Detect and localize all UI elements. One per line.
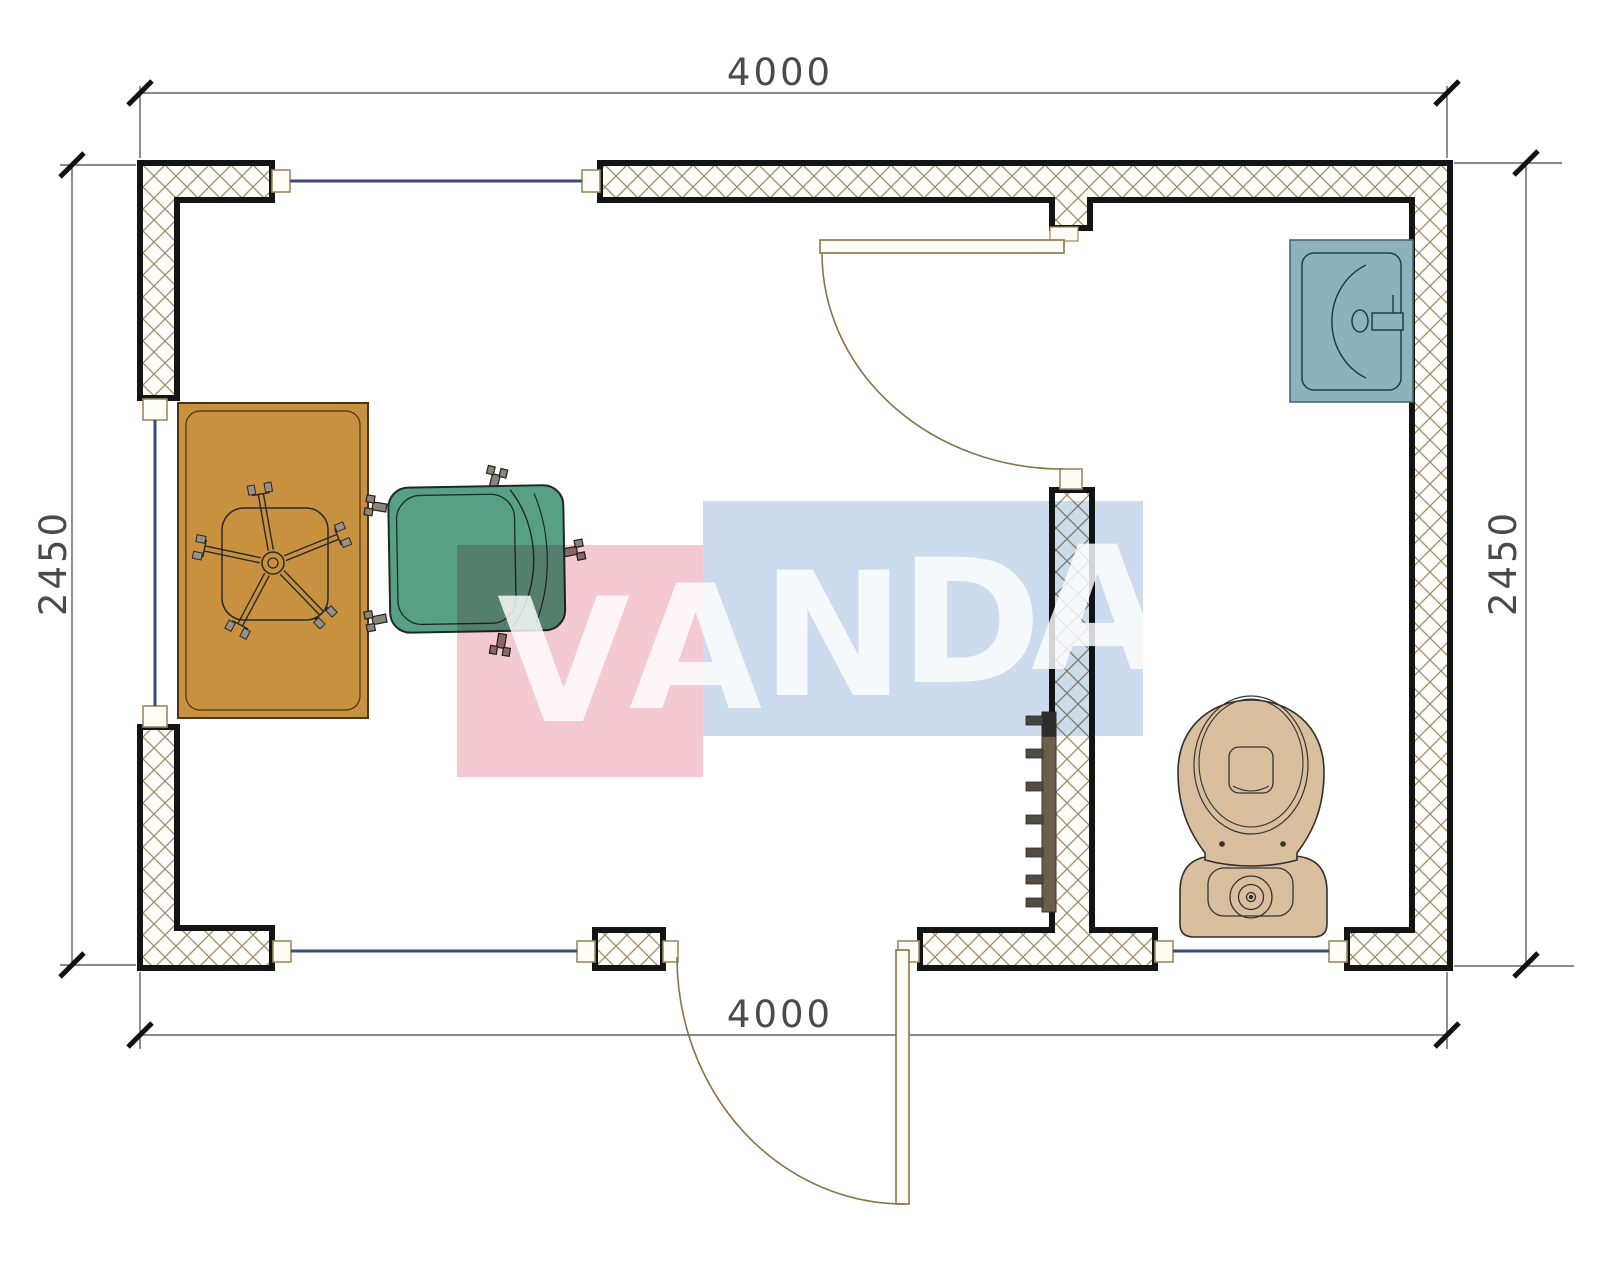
watermark-letter-n: N bbox=[761, 535, 905, 736]
dim-label-right: 2450 bbox=[1482, 510, 1525, 616]
bathroom-door-leaf bbox=[820, 240, 1064, 253]
bathroom-door-swing-arc bbox=[822, 253, 1063, 469]
toilet bbox=[1178, 696, 1327, 937]
watermark-letter-d: D bbox=[899, 522, 1042, 723]
dim-label-bottom: 4000 bbox=[727, 993, 833, 1036]
watermark-letter-a1: A bbox=[629, 548, 762, 749]
sink-faucet bbox=[1372, 313, 1403, 330]
entrance-door bbox=[677, 950, 909, 1204]
watermark-letter-v: V bbox=[497, 561, 630, 762]
desk bbox=[178, 403, 368, 718]
bathroom-door-hinge bbox=[1050, 227, 1078, 241]
dim-label-left: 2450 bbox=[32, 510, 75, 616]
dim-label-top: 4000 bbox=[727, 51, 833, 94]
sink bbox=[1290, 240, 1413, 402]
wall-top-left-corner bbox=[140, 163, 272, 398]
wall-bottom-left-corner bbox=[140, 727, 272, 968]
radiator bbox=[1026, 712, 1056, 912]
floor-plan-canvas: 4000 4000 2450 2450 bbox=[0, 0, 1600, 1280]
watermark-letter-a2: A bbox=[1031, 509, 1164, 710]
bathroom-door bbox=[820, 227, 1078, 469]
entrance-door-leaf bbox=[896, 950, 909, 1204]
floor-plan-drawing: 4000 4000 2450 2450 bbox=[0, 0, 1600, 1280]
toilet-bowl bbox=[1178, 700, 1324, 866]
wall-bottom-stub bbox=[595, 930, 663, 968]
